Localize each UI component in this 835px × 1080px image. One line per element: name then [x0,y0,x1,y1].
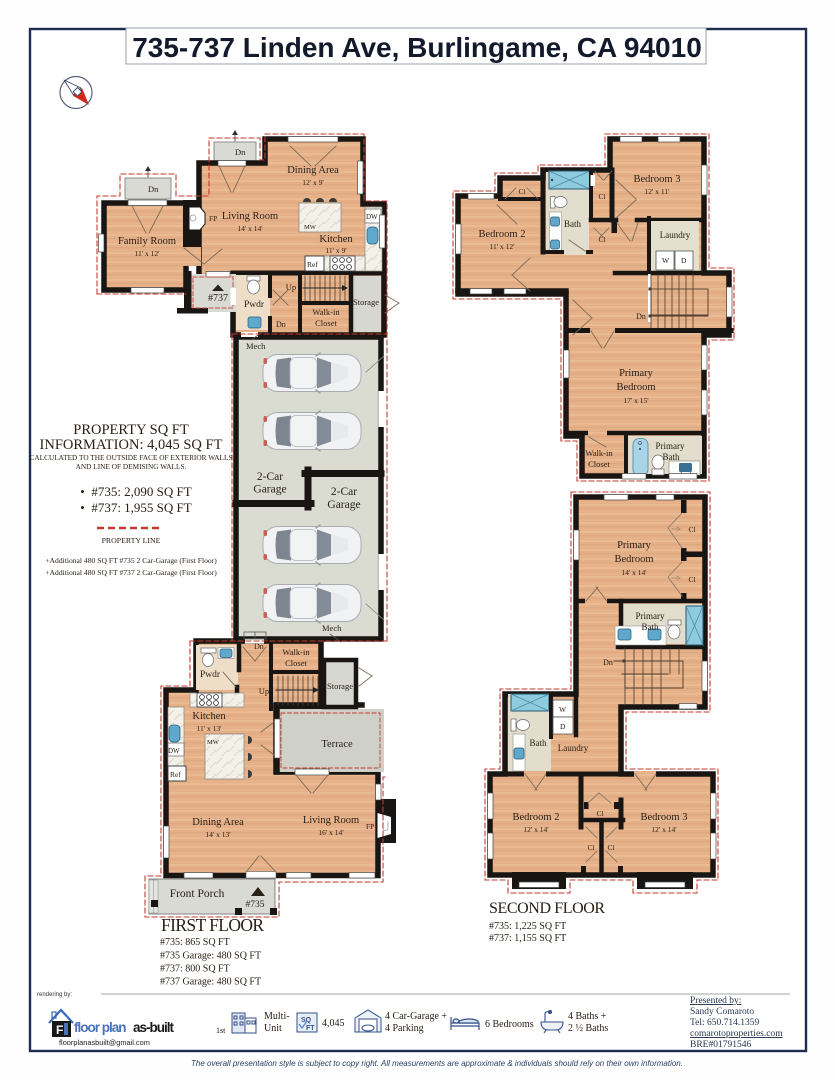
svg-text:Multi-: Multi- [264,1011,290,1022]
svg-text:Cl: Cl [598,192,605,201]
svg-text:Dn: Dn [254,642,264,651]
svg-text:#737: 1,155 SQ FT: #737: 1,155 SQ FT [489,933,566,944]
svg-text:Ref: Ref [307,260,318,269]
svg-text:DW: DW [168,747,180,755]
svg-text:Laundry: Laundry [660,230,691,240]
svg-text:Primary: Primary [636,611,665,621]
svg-text:Closet: Closet [285,658,307,668]
svg-text:floorplanasbuilt@gmail.com: floorplanasbuilt@gmail.com [59,1038,150,1047]
svg-text:BRE#01791546: BRE#01791546 [690,1040,751,1050]
svg-text:Mech: Mech [322,623,342,633]
svg-text:#735 Garage: 480 SQ FT: #735 Garage: 480 SQ FT [160,951,261,962]
svg-text:Living Room: Living Room [222,211,278,222]
svg-text:Up: Up [286,282,296,292]
svg-text:#737: 800 SQ FT: #737: 800 SQ FT [160,964,230,975]
svg-text:Dn: Dn [636,312,646,321]
svg-text:F: F [56,1023,63,1037]
svg-text:rendering by:: rendering by: [37,992,72,998]
svg-text:Ref: Ref [170,770,181,779]
svg-text:Kitchen: Kitchen [319,234,353,245]
svg-text:Dining Area: Dining Area [287,165,339,176]
svg-text:Closet: Closet [588,459,610,469]
svg-text:as-built: as-built [133,1020,175,1035]
svg-text:Bedroom: Bedroom [614,554,653,565]
svg-text:Dn: Dn [276,320,286,329]
svg-text:FIRST FLOOR: FIRST FLOOR [161,915,264,935]
svg-text:4,045: 4,045 [322,1018,345,1029]
svg-text:Bath: Bath [663,452,680,462]
svg-text:MW: MW [304,224,317,231]
svg-text:• #735: 2,090 SQ FT: • #735: 2,090 SQ FT [80,484,192,499]
svg-text:Bedroom 2: Bedroom 2 [479,229,526,240]
svg-text:6 Bedrooms: 6 Bedrooms [485,1019,534,1030]
svg-text:Dn: Dn [603,658,613,667]
svg-text:Unit: Unit [264,1023,282,1034]
svg-text:#735: #735 [246,900,265,910]
svg-text:W: W [662,256,670,265]
svg-text:12' x 14': 12' x 14' [651,825,677,834]
svg-text:Kitchen: Kitchen [192,711,226,722]
svg-text:#735: 865 SQ FT: #735: 865 SQ FT [160,937,230,948]
svg-text:Pwdr: Pwdr [200,670,221,680]
svg-text:Presented by:: Presented by: [690,996,741,1006]
svg-text:Sandy Comaroto: Sandy Comaroto [690,1007,754,1017]
svg-text:Tel: 650.714.1359: Tel: 650.714.1359 [690,1018,760,1028]
svg-text:MW: MW [207,739,220,746]
svg-text:2-Car: 2-Car [257,471,283,483]
svg-text:Family Room: Family Room [118,236,176,247]
svg-text:AND LINE OF DEMISING WALLS.: AND LINE OF DEMISING WALLS. [76,462,187,471]
svg-text:16' x 14': 16' x 14' [318,828,344,837]
svg-text:FP: FP [209,214,217,223]
svg-text:2-Car: 2-Car [331,486,357,498]
svg-text:Front Porch: Front Porch [170,888,225,900]
svg-text:1st: 1st [216,1026,226,1035]
svg-text:Bedroom 3: Bedroom 3 [634,174,681,185]
svg-text:14' x 14': 14' x 14' [237,224,263,233]
svg-text:Walk-in: Walk-in [282,647,310,657]
svg-text:Cl: Cl [596,809,603,818]
svg-text:4 Car-Garage +: 4 Car-Garage + [385,1011,447,1022]
svg-text:14' x 13': 14' x 13' [205,830,231,839]
svg-text:W: W [559,705,567,714]
svg-text:Walk-in: Walk-in [312,307,340,317]
svg-text:Terrace: Terrace [321,739,353,750]
svg-text:D: D [681,256,687,265]
svg-text:Bedroom 2: Bedroom 2 [513,812,560,823]
svg-text:4 Baths +: 4 Baths + [568,1011,607,1022]
svg-text:Dn: Dn [148,184,159,194]
svg-text:• #737: 1,955 SQ FT: • #737: 1,955 SQ FT [80,500,192,515]
svg-text:Laundry: Laundry [558,743,589,753]
svg-text:CALCULATED TO THE OUTSIDE FACE: CALCULATED TO THE OUTSIDE FACE OF EXTERI… [29,453,232,462]
svg-text:SECOND FLOOR: SECOND FLOOR [489,900,605,917]
svg-text:PROPERTY SQ FT: PROPERTY SQ FT [73,422,189,438]
svg-text:Pwdr: Pwdr [244,300,265,310]
svg-text:Bath: Bath [530,738,547,748]
svg-text:12' x 14': 12' x 14' [523,825,549,834]
svg-text:Storage: Storage [353,297,379,307]
svg-text:D: D [560,722,566,731]
svg-text:Cl: Cl [587,843,594,852]
svg-text:11' x 12': 11' x 12' [490,242,516,251]
svg-text:Primary: Primary [617,540,652,551]
svg-text:11' x 9': 11' x 9' [325,246,347,255]
svg-text:Dining Area: Dining Area [192,817,244,828]
svg-text:4 Parking: 4 Parking [385,1023,424,1034]
svg-text:Cl: Cl [518,187,525,196]
svg-text:Garage: Garage [253,484,286,496]
svg-text:comarotoproperties.com: comarotoproperties.com [690,1029,783,1039]
svg-text:14' x 14': 14' x 14' [621,568,647,577]
svg-text:FT: FT [306,1025,315,1032]
svg-text:12' x 9': 12' x 9' [302,178,324,187]
svg-text:INFORMATION: 4,045 SQ FT: INFORMATION: 4,045 SQ FT [40,437,223,453]
svg-text:#735: 1,225 SQ FT: #735: 1,225 SQ FT [489,921,566,932]
svg-text:Walk-in: Walk-in [585,448,613,458]
svg-text:#737 Garage: 480 SQ FT: #737 Garage: 480 SQ FT [160,977,261,988]
svg-text:Cl: Cl [688,575,695,584]
svg-text:#737: #737 [208,293,228,304]
svg-text:Primary: Primary [656,441,685,451]
svg-text:Living Room: Living Room [303,815,359,826]
svg-text:Garage: Garage [327,499,360,511]
svg-text:floor plan: floor plan [74,1020,126,1035]
svg-text:Bath: Bath [564,219,581,229]
svg-text:Cl: Cl [688,525,695,534]
svg-text:The overall presentation style: The overall presentation style is subjec… [191,1059,683,1068]
svg-text:+Additional 480 SQ FT #735 2 C: +Additional 480 SQ FT #735 2 Car-Garage … [45,556,217,565]
svg-text:Closet: Closet [315,318,337,328]
svg-text:Primary: Primary [619,368,654,379]
svg-text:FP: FP [366,822,374,831]
svg-text:Bedroom: Bedroom [616,382,655,393]
svg-text:Dn: Dn [235,147,246,157]
svg-text:+Additional 480 SQ FT #737 2 C: +Additional 480 SQ FT #737 2 Car-Garage … [45,568,217,577]
svg-text:2 ½ Baths: 2 ½ Baths [568,1023,608,1034]
svg-text:Bath: Bath [642,622,659,632]
svg-text:Mech: Mech [246,341,266,351]
svg-text:17' x 15': 17' x 15' [623,396,649,405]
svg-text:DW: DW [366,213,378,221]
svg-text:735-737 Linden Ave, Burlingame: 735-737 Linden Ave, Burlingame, CA 94010 [132,32,702,63]
svg-text:Cl: Cl [607,843,614,852]
svg-text:PROPERTY LINE: PROPERTY LINE [102,536,161,545]
svg-text:Up: Up [259,686,269,696]
svg-text:11' x 12': 11' x 12' [135,249,161,258]
svg-text:Bedroom 3: Bedroom 3 [641,812,688,823]
svg-text:11' x 13': 11' x 13' [197,724,223,733]
svg-text:12' x 11': 12' x 11' [645,187,671,196]
svg-text:Storage: Storage [327,681,353,691]
